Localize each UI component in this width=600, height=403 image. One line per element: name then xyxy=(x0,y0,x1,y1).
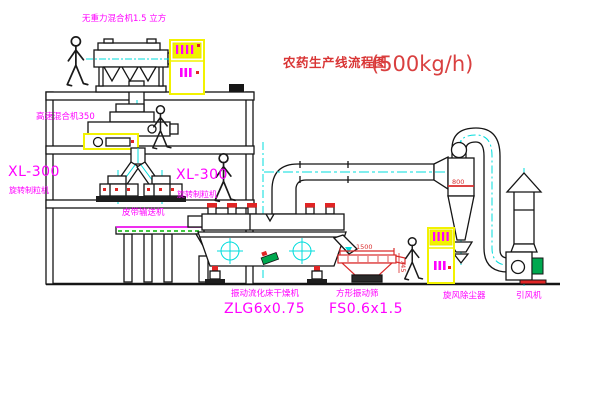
dryer-leg-right xyxy=(307,266,327,283)
dim-sieve-length: 1500 xyxy=(356,243,373,251)
indicator-dot xyxy=(196,71,199,74)
label-high-speed-mixer: 高速混合机350 xyxy=(36,111,95,122)
dim-sieve-height: 745 xyxy=(399,260,407,272)
stack-cap xyxy=(507,173,541,192)
label-granulator-right-name: 旋转制粒机 xyxy=(177,189,217,199)
label-granulator-right-model: XL-300 xyxy=(176,167,228,183)
label-belt-conveyor: 皮带输送机 xyxy=(122,207,165,218)
label-cyclone: 旋风除尘器 xyxy=(443,290,486,301)
indicator-dot xyxy=(448,266,451,269)
dim-cyclone-level: 800 xyxy=(452,178,464,186)
person-figure xyxy=(405,238,423,280)
label-fan: 引风机 xyxy=(516,290,542,301)
fan-base xyxy=(520,280,546,284)
cyclone-discharge-valve xyxy=(454,254,468,263)
induced-draft-fan xyxy=(506,252,546,284)
cyclone-top-flange xyxy=(452,143,467,158)
mixer-motor xyxy=(106,138,130,146)
drawing-capacity: (500kg/h) xyxy=(371,52,473,76)
cyclone-inlet-taper xyxy=(434,157,448,189)
cad-drawing-page: 农药生产线流程图 (500kg/h) 无重力混合机1.5 立方 高速混合机350… xyxy=(0,0,600,403)
indicator-dot xyxy=(197,44,200,47)
indicator-dot xyxy=(131,140,134,143)
label-granulator-left-model: XL-300 xyxy=(8,164,60,180)
exhaust-duct xyxy=(264,157,452,214)
label-gravity-mixer: 无重力混合机1.5 立方 xyxy=(82,13,166,24)
diagram-canvas: 农药生产线流程图 (500kg/h) 无重力混合机1.5 立方 高速混合机350… xyxy=(0,0,600,403)
sieve-base xyxy=(352,275,382,282)
mid-slab xyxy=(46,146,254,154)
granulator-base xyxy=(96,196,142,202)
fan-motor xyxy=(532,258,543,274)
label-granulator-left-name: 旋转制粒机 xyxy=(9,185,49,195)
control-cabinet-2 xyxy=(428,228,454,283)
granulator-left xyxy=(96,170,142,206)
label-dryer-model: ZLG6x0.75 xyxy=(224,301,305,317)
label-sieve-model: FS0.6x1.5 xyxy=(329,301,403,317)
control-cabinet-1 xyxy=(170,40,204,94)
roof-block xyxy=(229,84,244,92)
roof-slab xyxy=(46,92,254,100)
person-figure xyxy=(67,37,88,86)
cyclone-body xyxy=(448,158,474,196)
chute-support xyxy=(199,256,208,282)
label-dryer-name: 振动流化床干燥机 xyxy=(231,288,300,299)
label-sieve-name: 方形振动筛 xyxy=(336,288,379,299)
